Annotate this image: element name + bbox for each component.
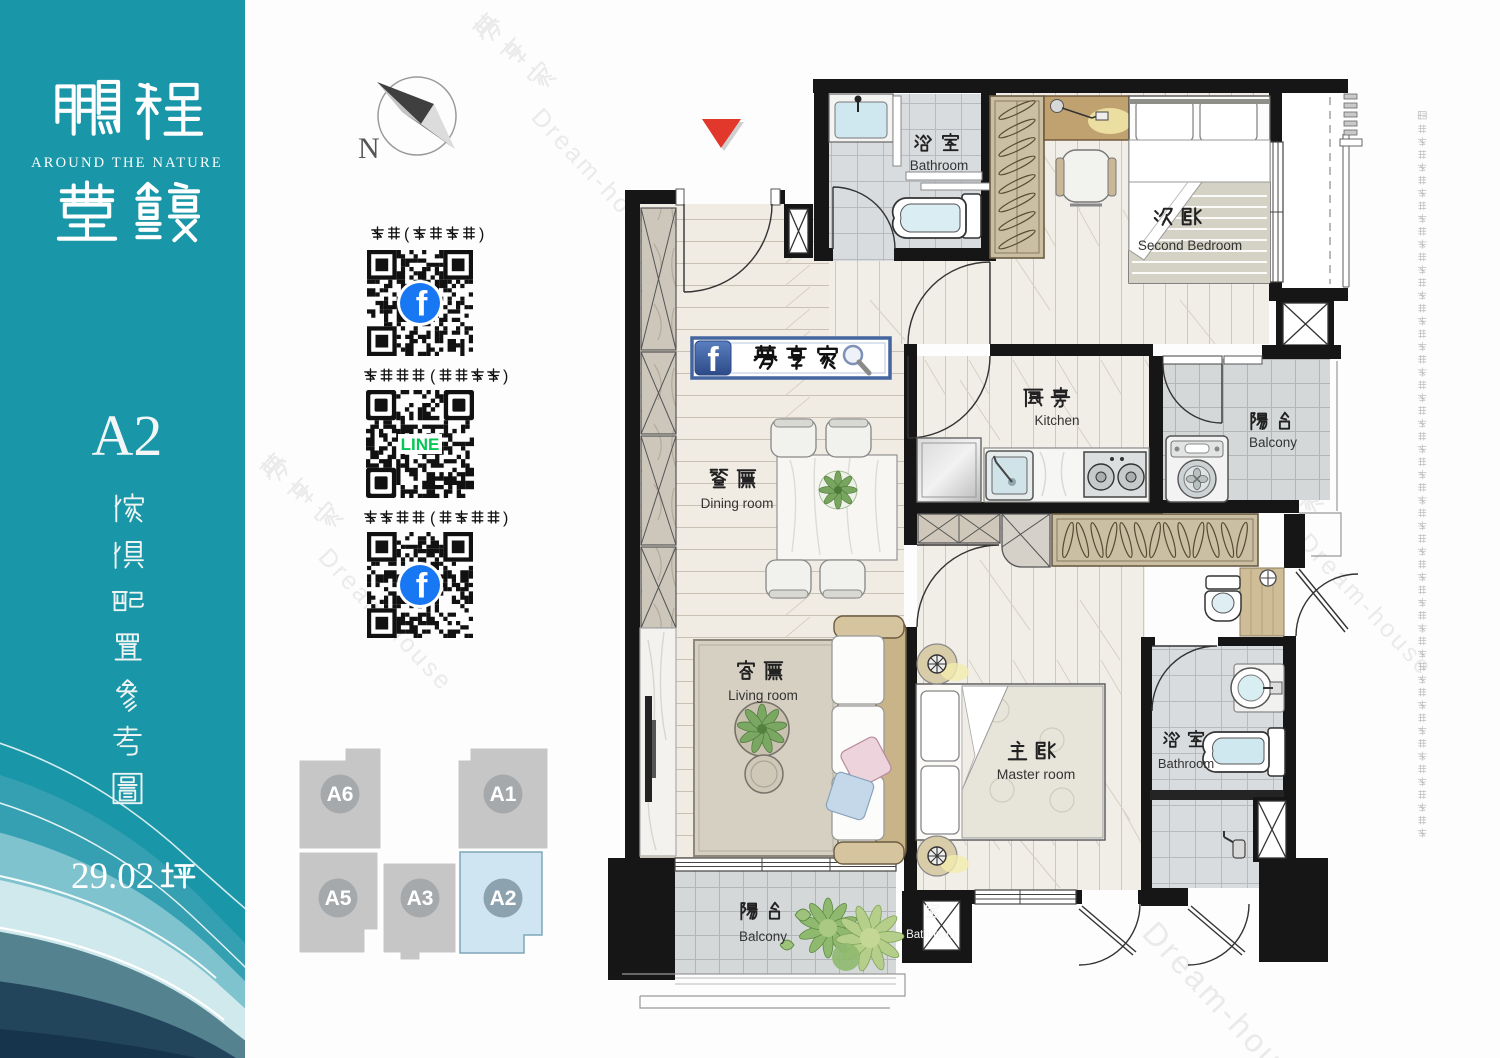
svg-text:A2: A2 <box>92 403 163 468</box>
svg-text:29.02: 29.02 <box>71 856 154 897</box>
svg-text:f: f <box>707 341 719 379</box>
svg-text:): ) <box>479 226 484 243</box>
svg-text:A3: A3 <box>407 887 434 910</box>
svg-text:Bathroom: Bathroom <box>1158 756 1214 771</box>
svg-text:Bathroom: Bathroom <box>906 929 956 941</box>
svg-text:Kitchen: Kitchen <box>1034 413 1079 428</box>
svg-text:Master room: Master room <box>997 766 1076 782</box>
svg-text:A1: A1 <box>490 783 517 806</box>
svg-text:): ) <box>503 510 508 527</box>
svg-text:A2: A2 <box>490 887 517 910</box>
svg-text:LINE: LINE <box>401 435 440 454</box>
svg-text:Living room: Living room <box>728 688 798 703</box>
svg-text:f: f <box>416 284 428 323</box>
svg-text:A5: A5 <box>325 887 352 910</box>
svg-text:A6: A6 <box>327 783 354 806</box>
svg-text:): ) <box>503 368 508 385</box>
svg-text:Bathroom: Bathroom <box>910 158 969 173</box>
svg-text:f: f <box>416 566 428 605</box>
svg-text:Balcony: Balcony <box>739 929 787 944</box>
svg-text:(: ( <box>404 226 410 243</box>
svg-text:N: N <box>358 132 380 165</box>
svg-text:(: ( <box>430 510 436 527</box>
svg-text:Dining room: Dining room <box>701 496 774 511</box>
svg-text:Balcony: Balcony <box>1249 435 1297 450</box>
svg-text:Second Bedroom: Second Bedroom <box>1138 238 1242 253</box>
svg-text:AROUND THE NATURE: AROUND THE NATURE <box>31 155 223 171</box>
svg-text:(: ( <box>430 368 436 385</box>
